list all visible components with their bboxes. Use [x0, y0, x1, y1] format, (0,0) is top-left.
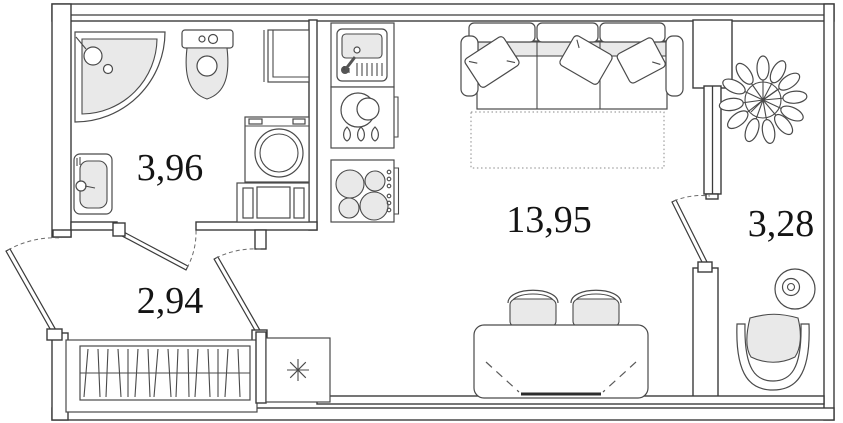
wall-bath-bottom-left — [71, 222, 117, 230]
balcony-area-label: 3,28 — [748, 203, 815, 245]
fridge-icon — [266, 338, 330, 402]
wall-door-stub — [255, 230, 266, 249]
armchair-icon — [737, 314, 809, 390]
wall-right — [824, 4, 834, 420]
bathroom-sink-icon — [74, 154, 112, 214]
kitchen-fixtures — [331, 23, 399, 222]
window-icon — [704, 86, 721, 199]
bathroom-door-icon — [113, 223, 196, 270]
hall-furniture — [66, 332, 330, 412]
round-table-icon — [775, 269, 815, 309]
wall-bath-bottom-right — [196, 222, 317, 230]
stove-icon — [331, 160, 399, 222]
wall-left — [52, 4, 71, 237]
toilet-icon — [182, 30, 233, 99]
entrance-door-icon — [6, 238, 62, 340]
room-door-icon — [214, 249, 267, 341]
kitchen-pots-icon — [331, 87, 398, 148]
snowflake-asterisk-icon — [287, 359, 309, 381]
sofa-bed-extension — [471, 112, 664, 168]
chair-icon — [508, 290, 558, 327]
floor-plan: 3,96 2,94 13,95 3,28 — [0, 0, 843, 423]
wall-balcony-lower — [693, 268, 718, 400]
shower-icon — [75, 32, 165, 122]
wall-top — [52, 4, 834, 21]
floor-plan-drawing: 3,96 2,94 13,95 3,28 — [0, 0, 843, 423]
wall-cabinet-icon — [264, 30, 309, 82]
balcony-door-icon — [672, 195, 712, 272]
wall-balcony-upper — [693, 20, 732, 88]
wall-bath-kitchen — [309, 20, 317, 230]
living-room-area-label: 13,95 — [506, 199, 592, 241]
chair-icon — [571, 290, 621, 327]
wardrobe-fridge-divider — [256, 332, 266, 403]
bathroom-area-label: 3,96 — [137, 147, 204, 189]
dining-table-icon — [474, 325, 648, 398]
bathroom-fixtures — [74, 30, 309, 222]
laundry-cabinet-icon — [237, 183, 309, 222]
wardrobe-icon — [66, 340, 257, 412]
sofa-icon — [461, 23, 683, 168]
wall-left-cap — [53, 230, 71, 237]
hallway-area-label: 2,94 — [137, 280, 204, 322]
washer-icon — [245, 117, 309, 182]
kitchen-sink-icon — [331, 23, 394, 87]
